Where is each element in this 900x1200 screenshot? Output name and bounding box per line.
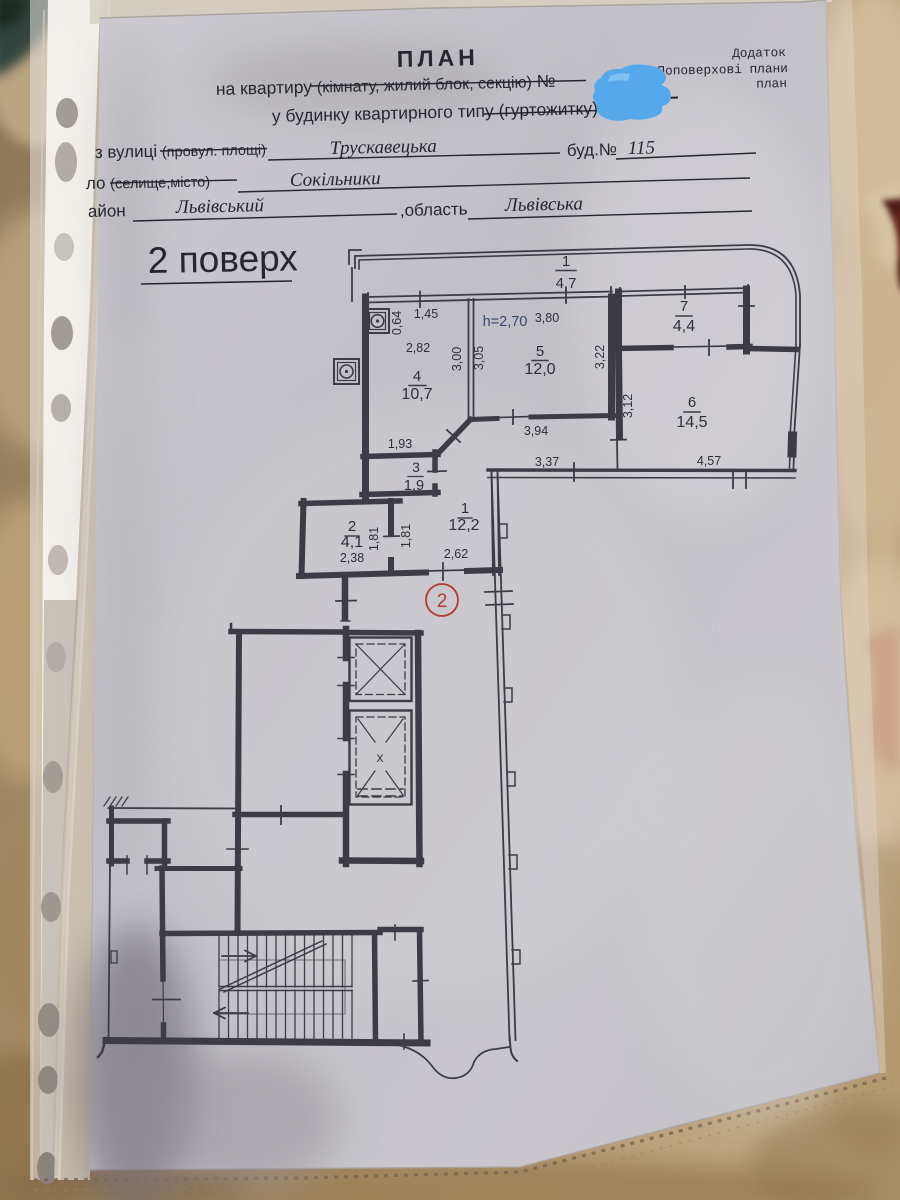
svg-text:2 поверх: 2 поверх <box>147 237 298 281</box>
svg-text:0,64: 0,64 <box>390 311 404 335</box>
svg-text:буд.№: буд.№ <box>567 140 618 160</box>
svg-text:план: план <box>756 76 787 92</box>
svg-text:Сокільники: Сокільники <box>290 168 381 191</box>
svg-text:5: 5 <box>536 343 544 360</box>
svg-text:4,57: 4,57 <box>697 454 721 468</box>
svg-text:14,5: 14,5 <box>676 414 707 431</box>
svg-text:,область: ,область <box>400 200 468 220</box>
svg-text:3,80: 3,80 <box>535 311 559 325</box>
svg-text:4,4: 4,4 <box>673 318 695 335</box>
svg-text:1,93: 1,93 <box>388 437 412 451</box>
svg-text:2: 2 <box>437 591 448 612</box>
svg-text:115: 115 <box>628 137 656 159</box>
svg-text:ПЛАН: ПЛАН <box>397 44 480 72</box>
svg-text:3,00: 3,00 <box>450 347 464 371</box>
svg-text:1,45: 1,45 <box>414 307 438 321</box>
svg-text:1,81: 1,81 <box>399 524 413 548</box>
svg-text:Львівський: Львівський <box>175 195 265 218</box>
svg-text:10,7: 10,7 <box>401 386 432 403</box>
svg-text:x: x <box>377 749 384 765</box>
svg-text:7: 7 <box>680 298 688 315</box>
svg-text:1: 1 <box>562 253 570 270</box>
svg-text:3,22: 3,22 <box>593 345 607 369</box>
svg-text:2,38: 2,38 <box>340 551 364 565</box>
svg-text:3,94: 3,94 <box>524 424 548 438</box>
svg-text:1: 1 <box>461 500 469 517</box>
svg-text:12,0: 12,0 <box>524 361 555 378</box>
svg-text:Додаток: Додаток <box>732 45 786 61</box>
svg-text:3: 3 <box>412 459 420 475</box>
svg-text:3,05: 3,05 <box>472 346 486 370</box>
svg-text:2,82: 2,82 <box>406 341 430 355</box>
svg-text:айон: айон <box>88 201 126 221</box>
svg-text:2: 2 <box>348 518 356 535</box>
svg-text:6: 6 <box>688 394 696 411</box>
svg-text:Львівська: Львівська <box>504 193 583 216</box>
svg-text:h=2,70: h=2,70 <box>483 314 528 330</box>
svg-text:Трускавецька: Трускавецька <box>330 136 437 159</box>
svg-text:3,12: 3,12 <box>621 394 635 418</box>
svg-text:4: 4 <box>413 368 421 385</box>
svg-text:2,62: 2,62 <box>444 547 468 561</box>
svg-text:12,2: 12,2 <box>448 517 479 534</box>
svg-text:1,9: 1,9 <box>404 478 424 494</box>
svg-text:1,81: 1,81 <box>367 527 381 551</box>
svg-text:3,37: 3,37 <box>535 455 559 469</box>
